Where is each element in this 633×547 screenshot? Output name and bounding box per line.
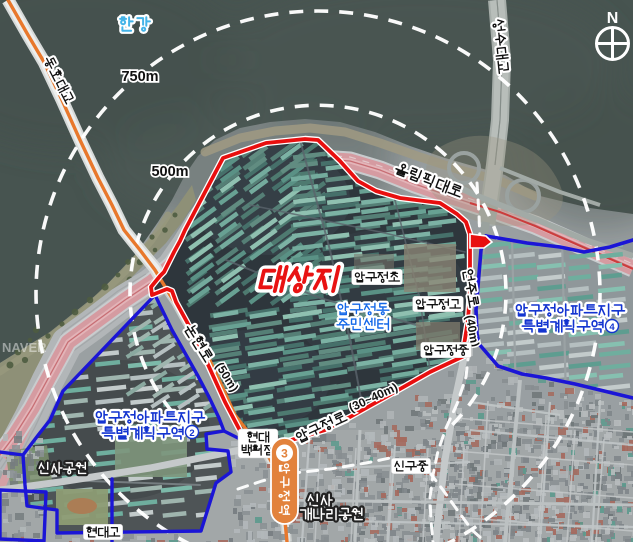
- svg-text:4: 4: [609, 322, 615, 333]
- svg-text:500m: 500m: [151, 164, 188, 180]
- svg-text:3: 3: [281, 447, 288, 461]
- svg-text:2: 2: [189, 428, 194, 439]
- svg-text:750m: 750m: [121, 69, 158, 85]
- svg-text:NAVER: NAVER: [2, 340, 47, 355]
- svg-text:N: N: [607, 10, 619, 27]
